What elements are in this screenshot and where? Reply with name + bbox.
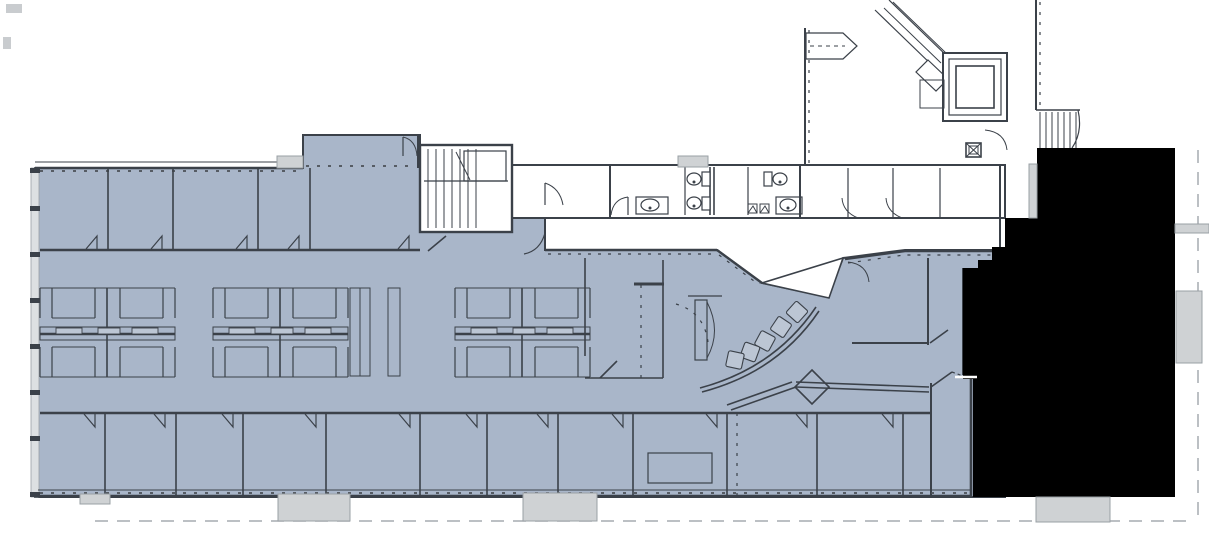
floor-box-icon <box>966 143 981 157</box>
site-tab <box>80 494 110 504</box>
site-tab <box>523 493 597 521</box>
toilet-icon <box>687 172 710 186</box>
toilet-icon <box>764 172 787 186</box>
site-tab <box>1175 224 1209 233</box>
blackout-edge-strip <box>1029 164 1037 218</box>
restrooms <box>610 165 1005 218</box>
site-tab <box>1176 291 1202 363</box>
site-tab <box>278 494 350 521</box>
window-wall-west <box>30 168 40 497</box>
column-tab <box>678 156 708 167</box>
column-tab <box>277 156 303 168</box>
site-tab <box>1036 497 1110 522</box>
floor-plan-canvas <box>0 0 1209 546</box>
toilet-icon <box>687 197 710 210</box>
floor-plan-svg <box>0 0 1209 546</box>
reception-chair <box>726 351 745 370</box>
